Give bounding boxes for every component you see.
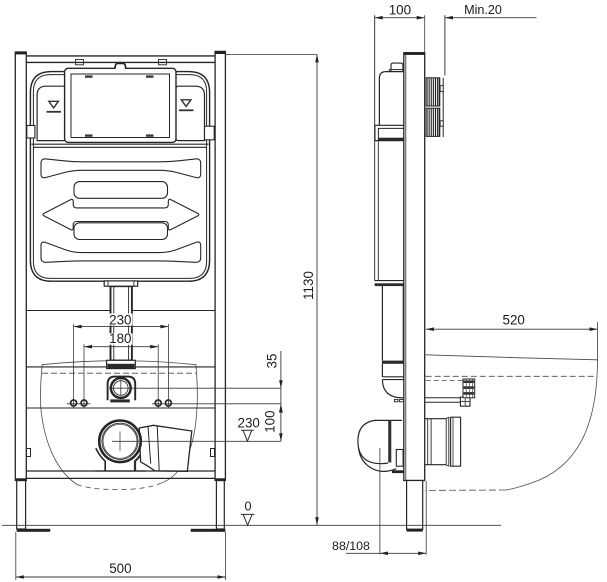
svg-text:100: 100 (263, 410, 278, 432)
svg-text:230: 230 (238, 416, 260, 431)
svg-text:0: 0 (244, 499, 251, 513)
svg-text:500: 500 (109, 561, 131, 576)
svg-text:1130: 1130 (301, 271, 316, 300)
svg-text:180: 180 (109, 331, 131, 346)
svg-text:100: 100 (389, 3, 411, 18)
svg-text:520: 520 (503, 313, 525, 328)
svg-text:88/108: 88/108 (332, 539, 370, 553)
svg-text:Min.20: Min.20 (464, 3, 502, 17)
svg-text:35: 35 (265, 354, 280, 369)
svg-text:230: 230 (109, 312, 131, 327)
